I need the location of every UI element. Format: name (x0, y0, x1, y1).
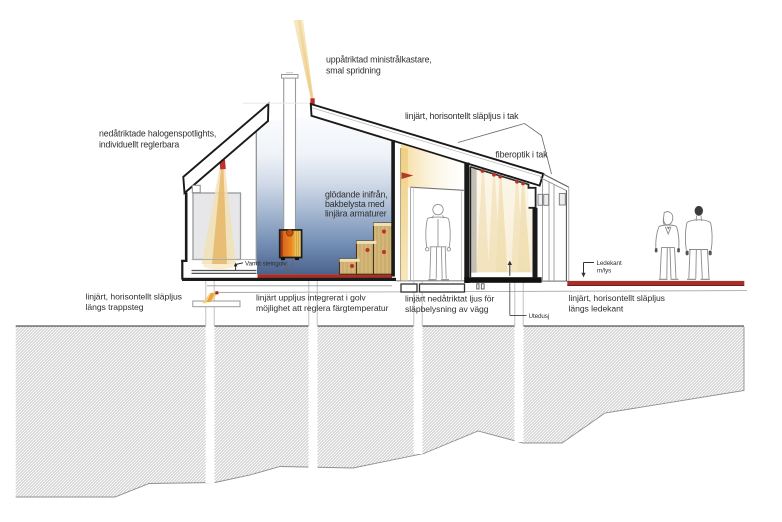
svg-text:Ledekant: Ledekant (597, 260, 622, 267)
svg-text:linjärt, horisontellt släpljus: linjärt, horisontellt släpljus i tak (405, 111, 519, 121)
svg-text:längs ledekant: längs ledekant (569, 304, 624, 314)
svg-text:fiberoptik i tak: fiberoptik i tak (496, 150, 549, 160)
svg-text:smal spridning: smal spridning (326, 66, 381, 76)
svg-text:möjlighet att reglera färgtemp: möjlighet att reglera färgtemperatur (256, 303, 389, 313)
svg-text:m/lys: m/lys (597, 268, 611, 275)
svg-text:nedåtriktade halogenspotlights: nedåtriktade halogenspotlights, (99, 129, 216, 139)
svg-text:linjärt, horisontellt släpljus: linjärt, horisontellt släpljus (569, 293, 665, 303)
svg-text:släpbelysning av vägg: släpbelysning av vägg (405, 304, 489, 314)
svg-text:linjära armaturer: linjära armaturer (325, 209, 387, 219)
svg-text:uppåtriktad ministrålkastare,: uppåtriktad ministrålkastare, (326, 55, 432, 65)
svg-text:bakbelysta med: bakbelysta med (325, 199, 385, 209)
svg-text:Utedusj: Utedusj (529, 313, 550, 320)
svg-text:glödande inifrån,: glödande inifrån, (325, 190, 388, 200)
svg-text:linjärt uppljus integrerat i g: linjärt uppljus integrerat i golv (256, 293, 366, 303)
svg-text:Varmt steingolv: Varmt steingolv (245, 261, 287, 268)
svg-text:längs trappsteg: längs trappsteg (86, 302, 144, 312)
svg-text:individuellt reglerbara: individuellt reglerbara (99, 140, 179, 150)
svg-text:linjärt, horisontellt släpljus: linjärt, horisontellt släpljus (86, 292, 182, 302)
svg-text:linjärt nedåtriktat ljus för: linjärt nedåtriktat ljus för (405, 294, 495, 304)
